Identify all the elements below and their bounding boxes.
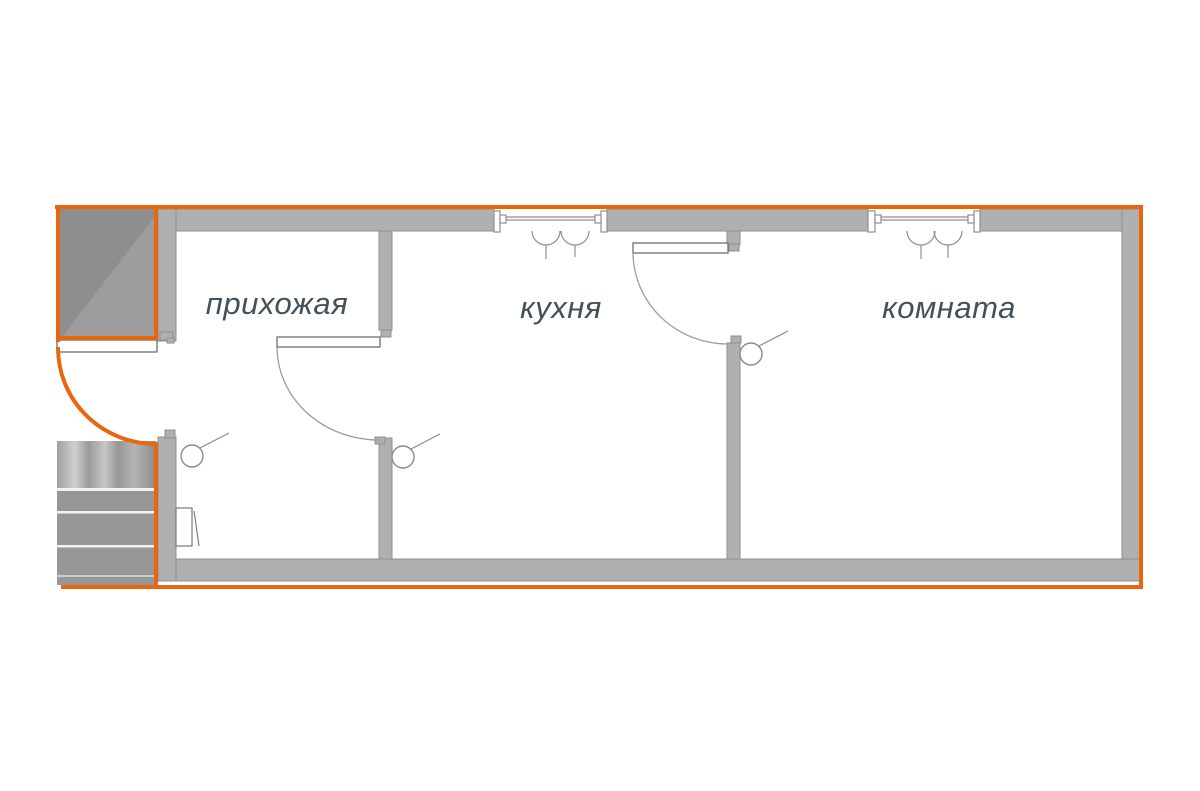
window-frame-cap — [494, 211, 500, 232]
floor-plan-page: прихожая кухня комната — [0, 0, 1200, 791]
room-labels: прихожая кухня комната — [206, 286, 1016, 325]
apartment-outline — [57, 207, 1141, 587]
wall-top-left-segment — [158, 209, 494, 231]
window-kitchen — [494, 211, 607, 259]
partition-kitchen-room-lower — [727, 343, 740, 559]
door-leaf — [277, 337, 380, 347]
window-vent-icon — [532, 231, 560, 259]
window-frame-cap — [500, 215, 506, 223]
window-vent-icon — [934, 231, 962, 258]
floor-plan-svg: прихожая кухня комната — [0, 0, 1200, 791]
partition-hallway-kitchen-upper — [379, 231, 392, 330]
door-swing-arc — [277, 347, 379, 440]
electrical-panel-icon — [176, 508, 199, 546]
wall-left-lower — [158, 437, 176, 581]
wall-top-right-segment — [980, 209, 1142, 231]
window-vent-icon — [907, 231, 935, 259]
window-frame-cap — [868, 211, 875, 232]
door-jambs — [160, 244, 741, 444]
partition-kitchen-room-stub — [727, 231, 740, 245]
wall-switch-icon — [181, 433, 229, 467]
wall-right — [1122, 209, 1140, 581]
wall-switch-icon — [392, 434, 440, 468]
room-label-room: комната — [882, 290, 1016, 325]
outline-top-right-bottom — [57, 207, 1141, 587]
window-frame-cap — [875, 215, 881, 223]
room-label-hallway: прихожая — [206, 286, 348, 321]
door-kitchen-room — [633, 243, 728, 344]
door-leaf — [633, 243, 728, 253]
window-frame-cap — [974, 211, 980, 232]
partition-hallway-kitchen-lower — [379, 438, 392, 559]
window-frame-cap — [595, 215, 601, 223]
landing-shaded-area — [59, 209, 156, 338]
entrance-door — [57, 340, 157, 352]
room-label-kitchen: кухня — [520, 290, 602, 325]
window-frame-cap — [968, 215, 974, 223]
walls — [158, 209, 1142, 581]
window-frame-cap — [601, 211, 607, 232]
window-room — [868, 211, 980, 259]
window-vent-icon — [561, 231, 589, 257]
door-hallway-kitchen — [277, 337, 380, 440]
wall-bottom — [158, 559, 1142, 581]
stair-blur — [57, 441, 156, 489]
wall-left-upper — [158, 209, 176, 341]
wall-top-middle-segment — [607, 209, 868, 231]
door-leaf — [57, 340, 157, 352]
door-swing-arc — [633, 253, 728, 344]
staircase — [57, 441, 156, 585]
wall-switch-icon — [740, 331, 788, 365]
